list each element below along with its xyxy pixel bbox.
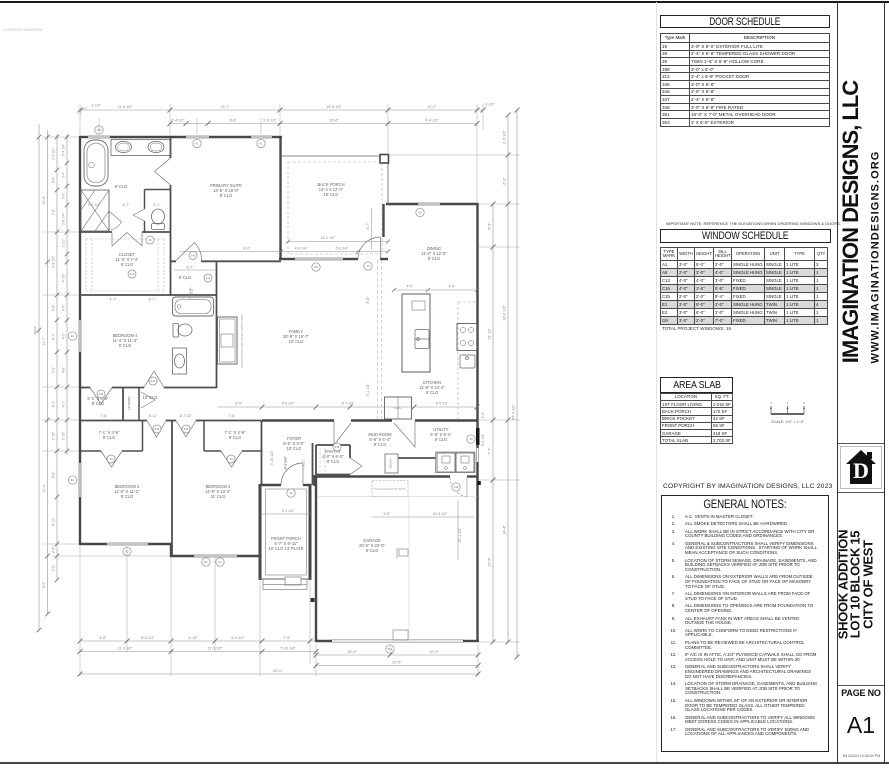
svg-text:3'-0 1/2": 3'-0 1/2": [88, 203, 102, 207]
svg-text:20'-6": 20'-6": [488, 557, 492, 567]
svg-text:348: 348: [454, 485, 459, 489]
svg-text:3 1/2": 3 1/2": [485, 103, 495, 107]
svg-text:14'-4": 14'-4": [503, 525, 507, 535]
svg-text:9' CLG: 9' CLG: [366, 548, 379, 553]
svg-text:347: 347: [151, 379, 156, 383]
svg-text:212: 212: [206, 276, 211, 280]
svg-text:346: 346: [99, 392, 104, 396]
svg-text:10'-9": 10'-9": [429, 650, 439, 654]
svg-text:21'-6": 21'-6": [392, 660, 402, 664]
svg-text:346: 346: [184, 427, 189, 431]
svg-text:6'-6 1/2": 6'-6 1/2": [282, 402, 296, 406]
svg-text:6'-0": 6'-0": [236, 402, 244, 406]
svg-text:3'-4 1/2": 3'-4 1/2": [52, 147, 56, 160]
svg-text:E1: E1: [218, 560, 222, 564]
svg-text:11' CLG: 11' CLG: [211, 494, 226, 499]
svg-text:4'-7": 4'-7": [52, 333, 56, 340]
svg-text:345: 345: [191, 254, 196, 258]
svg-text:3'-4": 3'-4": [62, 171, 66, 178]
svg-text:9' CLG: 9' CLG: [327, 459, 340, 464]
svg-text:4'-1": 4'-1": [52, 400, 56, 407]
svg-text:9' CLG: 9' CLG: [426, 390, 439, 395]
svg-text:4'-7": 4'-7": [110, 298, 118, 302]
svg-text:7'-10 1/4": 7'-10 1/4": [280, 646, 296, 650]
svg-text:7'-7": 7'-7": [488, 447, 492, 455]
svg-text:5'-5": 5'-5": [488, 222, 492, 230]
svg-text:3'-10": 3'-10": [62, 431, 66, 440]
svg-text:BENCH: BENCH: [389, 459, 393, 469]
svg-text:LAUNDRY: LAUNDRY: [127, 396, 131, 410]
svg-text:LOCATION OF FIRE WOOD SHOP STA: LOCATION OF FIRE WOOD SHOP STAIR: [240, 314, 244, 367]
svg-text:19'-5 1/2": 19'-5 1/2": [326, 105, 342, 109]
svg-text:5'-1": 5'-1": [154, 203, 162, 207]
svg-text:7'-8": 7'-8": [101, 414, 109, 418]
svg-text:4'-0": 4'-0": [407, 284, 415, 288]
svg-text:3 1/2": 3 1/2": [91, 104, 101, 108]
svg-text:5'-5 1/2": 5'-5 1/2": [481, 433, 485, 447]
svg-text:9' CLG: 9' CLG: [179, 275, 192, 280]
svg-text:9' CLG: 9' CLG: [92, 401, 105, 406]
svg-text:6'-7": 6'-7": [149, 298, 157, 302]
svg-text:4'-6": 4'-6": [62, 366, 66, 373]
svg-text:4'-10": 4'-10": [188, 636, 198, 640]
svg-text:9' CLG: 9' CLG: [428, 256, 441, 261]
svg-text:50'-0": 50'-0": [273, 669, 283, 673]
svg-text:9' CLG: 9' CLG: [435, 437, 448, 442]
svg-text:PULL DOWN ATTIC STAIR: PULL DOWN ATTIC STAIR: [374, 487, 405, 491]
svg-text:10' CLG: 10' CLG: [143, 395, 158, 400]
svg-text:5'-0 1/2": 5'-0 1/2": [231, 636, 245, 640]
svg-text:8'-11": 8'-11": [149, 414, 158, 418]
svg-text:7'-8": 7'-8": [229, 414, 237, 418]
svg-text:3'-0": 3'-0": [52, 546, 56, 553]
svg-text:2'-5 1/2": 2'-5 1/2": [503, 130, 507, 144]
svg-text:11'-3 1/2": 11'-3 1/2": [117, 646, 133, 650]
svg-text:13'-0 1/2": 13'-0 1/2": [321, 236, 337, 240]
svg-text:4'-10": 4'-10": [62, 273, 66, 282]
svg-text:8'-0": 8'-0": [42, 581, 46, 588]
svg-text:19: 19: [289, 491, 293, 495]
svg-text:5'-8": 5'-8": [52, 471, 56, 478]
svg-text:5'-1 1/2": 5'-1 1/2": [366, 383, 370, 397]
svg-text:D: D: [853, 458, 869, 483]
svg-text:7'-8": 7'-8": [52, 208, 56, 215]
svg-text:10'-9 1/2": 10'-9 1/2": [433, 512, 449, 516]
svg-text:4'-5": 4'-5": [62, 304, 66, 311]
svg-text:E1: E1: [71, 478, 75, 482]
svg-text:10' CLG: 10' CLG: [287, 446, 302, 451]
svg-text:6'-1": 6'-1": [503, 177, 507, 185]
svg-text:9' CLG: 9' CLG: [103, 435, 116, 440]
svg-text:9' CLG: 9' CLG: [374, 442, 387, 447]
svg-text:5'-0 1/2": 5'-0 1/2": [141, 636, 155, 640]
svg-text:11'-4": 11'-4": [42, 483, 46, 492]
svg-text:A8: A8: [469, 437, 473, 441]
svg-text:9'-6": 9'-6": [229, 118, 237, 122]
svg-text:4: 4: [787, 401, 789, 405]
svg-text:3'-10 1/2": 3'-10 1/2": [270, 450, 274, 466]
svg-text:4'-5 1/2": 4'-5 1/2": [436, 402, 450, 406]
svg-text:212: 212: [130, 272, 135, 276]
svg-text:9'-4 1/2": 9'-4 1/2": [425, 118, 439, 122]
svg-text:0: 0: [770, 401, 772, 405]
svg-text:3'-1": 3'-1": [302, 459, 306, 467]
svg-text:E1: E1: [71, 334, 75, 338]
svg-text:6'-1 1/2": 6'-1 1/2": [284, 456, 288, 470]
svg-text:5'-11": 5'-11": [52, 517, 56, 526]
svg-text:11'-3 1/2": 11'-3 1/2": [117, 105, 133, 109]
svg-text:4'-0": 4'-0": [449, 284, 457, 288]
svg-text:A1: A1: [195, 142, 199, 146]
svg-text:9' CLG: 9' CLG: [121, 494, 134, 499]
svg-text:5'-4 1/4": 5'-4 1/4": [62, 143, 66, 156]
svg-text:9' CLG: 9' CLG: [220, 193, 233, 198]
svg-text:4'-9 1/4": 4'-9 1/4": [295, 246, 309, 250]
svg-text:4'-8": 4'-8": [99, 636, 107, 640]
svg-text:10'-9": 10'-9": [347, 650, 357, 654]
svg-text:15'-0": 15'-0": [190, 287, 194, 297]
svg-text:6'-7": 6'-7": [187, 265, 195, 269]
svg-text:E1: E1: [204, 560, 208, 564]
svg-text:8'-7 1/2": 8'-7 1/2": [180, 414, 194, 418]
svg-text:10' CLG 13' PLATE: 10' CLG 13' PLATE: [268, 546, 303, 551]
svg-text:2'-8": 2'-8": [62, 192, 66, 199]
svg-text:2'-0": 2'-0": [52, 564, 56, 571]
svg-text:8'-6": 8'-6": [366, 296, 370, 304]
svg-text:9'-8": 9'-8": [384, 512, 392, 516]
svg-text:60'-8": 60'-8": [34, 325, 38, 334]
svg-text:4'-7": 4'-7": [366, 222, 370, 230]
svg-text:2'-4 1/2": 2'-4 1/2": [171, 118, 185, 122]
svg-text:13'-7": 13'-7": [220, 105, 230, 109]
svg-text:16'-1 1/2": 16'-1 1/2": [458, 527, 462, 543]
svg-text:11'-7": 11'-7": [42, 336, 46, 345]
svg-text:346: 346: [155, 427, 160, 431]
svg-text:21'-11": 21'-11": [488, 328, 492, 340]
svg-text:11'-3 1/2": 11'-3 1/2": [207, 646, 223, 650]
svg-text:15'-6": 15'-6": [329, 118, 339, 122]
svg-text:4'-2": 4'-2": [52, 366, 56, 373]
svg-text:7'-5": 7'-5": [283, 636, 291, 640]
svg-text:3'-8 1/4": 3'-8 1/4": [62, 212, 66, 225]
svg-text:9' CLG: 9' CLG: [119, 343, 132, 348]
svg-text:2'-6 1/2": 2'-6 1/2": [263, 118, 277, 122]
svg-text:29: 29: [109, 457, 113, 461]
svg-text:G9: G9: [418, 211, 422, 215]
svg-text:G9: G9: [314, 265, 318, 269]
svg-text:67'-4 1/2": 67'-4 1/2": [512, 404, 516, 420]
svg-text:3'-10": 3'-10": [52, 431, 56, 440]
svg-text:2'-11": 2'-11": [62, 238, 66, 247]
svg-text:29: 29: [148, 238, 152, 242]
svg-text:10' CLG: 10' CLG: [324, 192, 339, 197]
svg-text:4'-0": 4'-0": [52, 304, 56, 311]
svg-text:9'-1 1/2": 9'-1 1/2": [282, 509, 296, 513]
svg-text:4'-2": 4'-2": [62, 332, 66, 339]
svg-text:9' CLG: 9' CLG: [121, 262, 134, 267]
svg-text:9' CLG: 9' CLG: [115, 184, 128, 189]
svg-text:19: 19: [366, 264, 370, 268]
svg-text:6'-0 1/4": 6'-0 1/4": [336, 246, 350, 250]
svg-text:5'-8": 5'-8": [52, 176, 56, 183]
svg-text:4'-1": 4'-1": [62, 400, 66, 407]
svg-text:2'-6": 2'-6": [481, 411, 485, 419]
svg-text:8'-0": 8'-0": [244, 246, 252, 250]
svg-text:A1: A1: [259, 142, 263, 146]
svg-text:4'-9 1/2": 4'-9 1/2": [52, 255, 56, 268]
svg-text:4'-7": 4'-7": [123, 203, 131, 207]
svg-text:FRIG: FRIG: [394, 406, 402, 410]
svg-text:29: 29: [229, 457, 233, 461]
svg-text:345: 345: [335, 445, 340, 449]
svg-text:21'-9": 21'-9": [42, 195, 46, 204]
svg-text:10' CLG: 10' CLG: [289, 339, 304, 344]
svg-text:8'-7 1/2": 8'-7 1/2": [342, 402, 356, 406]
svg-text:9' CLG: 9' CLG: [229, 435, 242, 440]
svg-text:11'-2": 11'-2": [427, 105, 437, 109]
svg-text:13'-6 1/2": 13'-6 1/2": [503, 305, 507, 321]
svg-text:8: 8: [803, 401, 805, 405]
svg-text:SCALE: 1/4" = 1'-0": SCALE: 1/4" = 1'-0": [771, 420, 805, 424]
